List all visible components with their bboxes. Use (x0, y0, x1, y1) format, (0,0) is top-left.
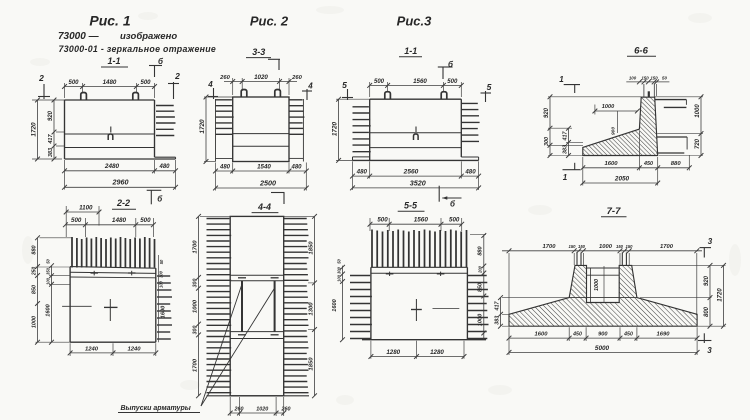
svg-text:1600: 1600 (332, 298, 338, 311)
svg-text:383: 383 (494, 316, 500, 325)
svg-text:260: 260 (291, 75, 302, 81)
svg-text:150: 150 (641, 75, 649, 80)
svg-text:3-3: 3-3 (252, 47, 265, 57)
svg-text:1: 1 (563, 173, 568, 182)
svg-text:150: 150 (578, 244, 586, 249)
svg-text:260: 260 (281, 406, 291, 412)
svg-text:260: 260 (219, 75, 230, 81)
svg-text:2560: 2560 (403, 169, 419, 176)
svg-text:1480: 1480 (112, 217, 127, 224)
svg-text:1850: 1850 (308, 357, 314, 371)
svg-text:1600: 1600 (45, 303, 51, 316)
svg-text:б: б (448, 60, 454, 69)
svg-text:920: 920 (544, 107, 550, 118)
svg-text:900: 900 (598, 332, 608, 338)
svg-text:900: 900 (611, 127, 617, 135)
svg-text:150: 150 (616, 244, 624, 249)
svg-text:383: 383 (562, 145, 568, 154)
svg-text:1000: 1000 (599, 244, 613, 250)
svg-text:1000: 1000 (192, 299, 198, 313)
svg-text:800: 800 (704, 306, 710, 317)
svg-text:480: 480 (290, 164, 302, 170)
svg-text:2050: 2050 (614, 175, 630, 182)
svg-text:880: 880 (478, 245, 484, 255)
svg-text:500: 500 (449, 217, 460, 224)
svg-text:4: 4 (207, 80, 213, 89)
svg-text:500: 500 (71, 217, 82, 224)
svg-text:850: 850 (31, 285, 37, 294)
svg-text:480: 480 (158, 164, 170, 170)
svg-text:5-5: 5-5 (404, 201, 418, 211)
svg-text:1700: 1700 (192, 240, 198, 254)
svg-text:480: 480 (356, 169, 368, 176)
svg-text:1280: 1280 (386, 349, 400, 356)
svg-text:417: 417 (562, 131, 568, 142)
svg-text:5000: 5000 (595, 345, 610, 352)
svg-text:1-1: 1-1 (107, 56, 120, 66)
svg-text:920: 920 (48, 110, 54, 121)
svg-text:1560: 1560 (414, 217, 429, 224)
svg-text:Выпуски арматуры: Выпуски арматуры (121, 405, 191, 412)
svg-text:1240: 1240 (127, 346, 141, 352)
svg-text:150: 150 (569, 244, 577, 249)
svg-text:2960: 2960 (112, 178, 129, 187)
svg-text:1720: 1720 (717, 288, 723, 302)
svg-text:3520: 3520 (410, 178, 426, 187)
svg-text:260: 260 (234, 406, 244, 412)
svg-text:300: 300 (192, 326, 198, 335)
svg-text:4: 4 (307, 82, 313, 91)
svg-text:1000: 1000 (31, 316, 37, 328)
svg-text:1000: 1000 (695, 104, 701, 118)
svg-text:720: 720 (695, 138, 701, 149)
svg-text:1020: 1020 (256, 406, 268, 412)
svg-text:2: 2 (38, 73, 44, 83)
svg-text:383: 383 (48, 147, 54, 157)
svg-text:2: 2 (174, 71, 180, 81)
svg-text:100: 100 (629, 75, 637, 80)
svg-text:100: 100 (159, 280, 164, 288)
svg-text:920: 920 (704, 275, 710, 286)
svg-text:500: 500 (447, 79, 458, 85)
svg-text:1000: 1000 (602, 104, 615, 110)
svg-text:1720: 1720 (331, 121, 338, 136)
svg-text:500: 500 (140, 217, 151, 224)
svg-text:300: 300 (336, 266, 341, 274)
svg-text:850: 850 (478, 283, 484, 292)
svg-text:1-1: 1-1 (404, 46, 417, 56)
svg-text:1700: 1700 (660, 244, 674, 250)
svg-text:73000-01 - зеркальное отражени: 73000-01 - зеркальное отражение (59, 44, 217, 54)
svg-text:500: 500 (377, 217, 388, 224)
svg-text:50: 50 (336, 259, 341, 264)
svg-text:Puc.3: Puc.3 (397, 14, 432, 29)
svg-text:б: б (157, 195, 163, 204)
svg-text:1600: 1600 (161, 305, 167, 318)
svg-text:1690: 1690 (657, 332, 671, 338)
svg-text:Puc. 2: Puc. 2 (250, 14, 289, 29)
svg-text:б: б (450, 200, 456, 209)
svg-text:3: 3 (707, 346, 712, 355)
svg-text:300: 300 (159, 270, 164, 278)
svg-text:450: 450 (623, 332, 633, 338)
svg-text:4-4: 4-4 (257, 202, 271, 212)
svg-text:1600: 1600 (535, 332, 549, 338)
svg-text:1720: 1720 (199, 119, 206, 134)
svg-text:5: 5 (342, 80, 347, 90)
svg-text:50: 50 (159, 259, 164, 264)
svg-text:1020: 1020 (254, 74, 268, 81)
svg-text:2500: 2500 (259, 178, 276, 187)
svg-text:1560: 1560 (413, 78, 427, 85)
svg-text:350: 350 (45, 267, 50, 275)
svg-text:480: 480 (219, 164, 231, 170)
svg-text:300: 300 (192, 279, 198, 288)
svg-text:50: 50 (662, 75, 667, 80)
svg-text:1000: 1000 (478, 313, 484, 326)
svg-text:50: 50 (45, 259, 50, 264)
svg-text:2-2: 2-2 (116, 198, 130, 208)
svg-text:1540: 1540 (257, 163, 271, 170)
svg-text:300: 300 (544, 137, 550, 146)
svg-text:500: 500 (140, 80, 151, 86)
svg-text:73000 —: 73000 — (58, 31, 100, 42)
svg-text:500: 500 (374, 79, 385, 85)
svg-text:880: 880 (671, 161, 682, 167)
svg-text:250: 250 (31, 267, 37, 277)
svg-text:2480: 2480 (104, 163, 120, 170)
svg-text:7-7: 7-7 (607, 206, 621, 217)
svg-text:880: 880 (31, 245, 37, 254)
svg-text:1000: 1000 (594, 279, 600, 291)
svg-text:1100: 1100 (79, 204, 93, 211)
svg-text:1700: 1700 (192, 358, 198, 372)
svg-text:480: 480 (464, 169, 476, 176)
svg-text:1240: 1240 (85, 346, 99, 352)
svg-text:1280: 1280 (430, 349, 444, 356)
svg-text:1480: 1480 (103, 79, 117, 86)
svg-text:1720: 1720 (30, 122, 37, 137)
svg-text:1600: 1600 (604, 161, 618, 167)
svg-text:б: б (158, 57, 164, 66)
svg-text:3: 3 (708, 237, 713, 246)
svg-text:150: 150 (650, 75, 658, 80)
svg-text:100: 100 (336, 274, 341, 282)
svg-text:450: 450 (643, 161, 653, 167)
svg-text:изображено: изображено (120, 31, 177, 42)
svg-text:450: 450 (572, 332, 582, 338)
svg-text:200: 200 (478, 265, 483, 274)
svg-text:1700: 1700 (543, 244, 557, 250)
svg-text:Puc. 1: Puc. 1 (89, 13, 130, 29)
svg-text:100: 100 (45, 277, 50, 285)
svg-text:500: 500 (68, 80, 79, 86)
svg-text:5: 5 (487, 82, 492, 92)
svg-text:1: 1 (559, 75, 564, 84)
svg-text:150: 150 (626, 244, 634, 249)
svg-text:417: 417 (494, 301, 500, 312)
svg-text:1300: 1300 (308, 302, 314, 316)
svg-text:6-6: 6-6 (634, 46, 648, 57)
svg-text:417: 417 (48, 133, 54, 144)
svg-text:1850: 1850 (308, 241, 314, 255)
